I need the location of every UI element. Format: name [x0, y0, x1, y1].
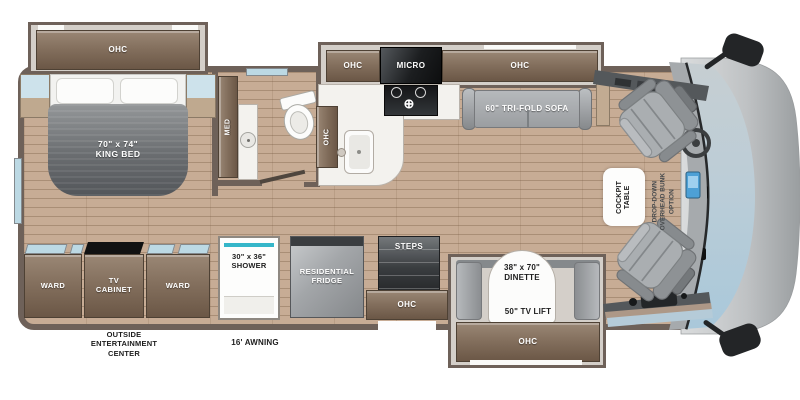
slide-edge	[470, 360, 582, 365]
microwave: MICRO	[380, 47, 442, 84]
residential-fridge: RESIDENTIALFRIDGE	[290, 236, 364, 318]
outside-entertainment-center-label: OUTSIDEENTERTAINMENTCENTER	[85, 328, 163, 360]
dinette-ohc: OHC	[456, 322, 600, 362]
nightstand-right	[186, 74, 216, 118]
entry-door	[378, 321, 436, 330]
awning-label: 16' AWNING	[210, 337, 300, 349]
entry-ohc: OHC	[366, 290, 448, 320]
burner-icon	[415, 87, 426, 98]
burner-icon	[391, 87, 402, 98]
faucet-icon	[337, 148, 346, 157]
window	[25, 244, 68, 254]
bedroom-ohc: OHC	[36, 30, 200, 70]
rv-floorplan: OUTSIDEENTERTAINMENTCENTER 16' AWNING OH…	[0, 0, 800, 400]
bathroom-window	[246, 68, 288, 76]
kitchen-ohc-counter: OHC	[316, 106, 338, 168]
wardrobe-right: WARD	[146, 254, 210, 318]
rear-window	[14, 158, 22, 224]
sink-drain	[357, 150, 361, 154]
bathroom-wall-bottom	[218, 180, 262, 186]
bunk-option-label: DROP-DOWN OVERHEAD BUNK OPTION	[612, 150, 716, 254]
wardrobe-left: WARD	[24, 254, 82, 318]
sofa-divider	[527, 110, 529, 127]
slide-edge	[484, 45, 576, 49]
kitchen-ohc-right: OHC	[442, 50, 598, 82]
pillow	[56, 78, 114, 104]
shower: 30" x 36"SHOWER	[218, 236, 280, 320]
fridge-top	[291, 237, 363, 246]
tv	[84, 242, 144, 254]
king-bed: 70" x 74"KING BED	[48, 104, 188, 196]
entry-steps: STEPS	[378, 236, 440, 294]
tv-cabinet: TVCABINET	[84, 254, 144, 318]
window	[147, 244, 176, 254]
shower-accent	[224, 243, 274, 247]
tv-lift-label: 50" TV LIFT	[458, 306, 598, 318]
pillow	[120, 78, 178, 104]
burner-knob-icon: ⊕	[402, 97, 416, 111]
kitchen-ohc-left: OHC	[326, 50, 380, 82]
shower-tray	[224, 296, 274, 314]
window	[178, 244, 211, 254]
nightstand-left	[20, 74, 50, 118]
med-cabinet: MED	[218, 76, 238, 178]
bath-sink-drain	[247, 139, 250, 142]
